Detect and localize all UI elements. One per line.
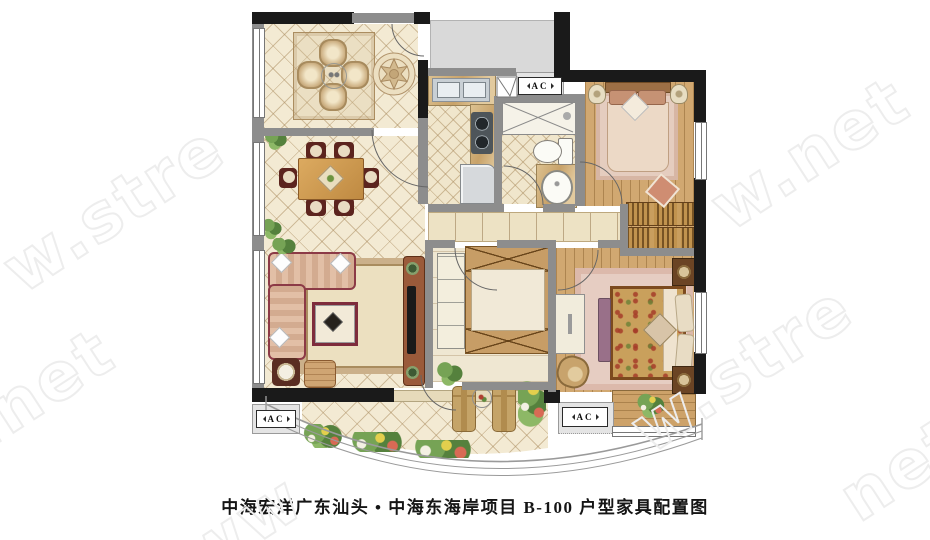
potted-plant	[436, 360, 464, 386]
wall	[620, 248, 694, 256]
balcony-plant	[300, 424, 346, 448]
wall	[694, 352, 706, 394]
window	[695, 122, 707, 180]
wall	[418, 60, 428, 118]
wall	[428, 204, 504, 212]
bed3-foot-storage	[465, 328, 551, 354]
wall	[428, 68, 516, 76]
potted-plant	[262, 216, 282, 240]
balcony-plant	[408, 440, 478, 458]
bed3-mattress	[471, 269, 545, 331]
wall	[462, 382, 548, 390]
window	[695, 292, 707, 354]
floor-plan-image: w.stre w.net .net w.stre www net	[0, 0, 930, 540]
wall	[494, 96, 502, 204]
ac-label-bottom-left: AC	[256, 410, 296, 428]
bedroom3-cabinet	[437, 253, 465, 349]
foyer-center-table	[321, 63, 347, 89]
bay-window-glass	[612, 426, 696, 437]
wall	[252, 12, 354, 24]
balcony-plant	[346, 432, 408, 452]
plan-caption: 中海宏洋广东汕头 • 中海东海岸项目 B-100 户型家具配置图	[0, 493, 930, 518]
kitchen-stove	[471, 112, 493, 154]
wall	[425, 240, 433, 388]
dining-chair	[279, 168, 297, 188]
potted-plant	[270, 238, 298, 254]
wall	[252, 128, 374, 136]
corridor-floor	[428, 212, 622, 242]
wall	[554, 12, 570, 74]
sink-bowl	[463, 82, 486, 98]
wall	[543, 204, 575, 212]
sink-bowl	[437, 82, 460, 98]
window	[253, 142, 265, 236]
dining-chair	[334, 198, 354, 216]
roof-void-area	[430, 20, 558, 74]
tv-shelf-decor	[406, 262, 419, 275]
ac-label-text: AC	[577, 412, 594, 422]
bay-window-flowers	[636, 392, 666, 418]
side-table-with-lamp	[272, 358, 300, 386]
master-pillow	[674, 293, 694, 332]
watermark-text: .net	[0, 313, 128, 465]
toilet-bowl	[533, 140, 562, 163]
wash-basin	[541, 170, 573, 205]
wall	[497, 240, 556, 248]
wall	[554, 70, 706, 82]
wall	[694, 82, 706, 122]
bed-end-bench	[598, 298, 611, 362]
wall	[418, 118, 428, 204]
balcony-round-table	[472, 388, 492, 408]
shower-head	[563, 112, 571, 120]
wall	[414, 12, 430, 24]
nightstand	[670, 84, 688, 104]
sofa-left-section	[268, 284, 306, 360]
dining-chair	[306, 198, 326, 216]
window	[253, 250, 265, 384]
wall	[575, 94, 585, 206]
wall	[352, 13, 414, 23]
tv-shelf-decor	[406, 366, 419, 379]
wall	[252, 386, 264, 402]
master-nightstand	[672, 366, 696, 394]
master-nightstand	[672, 258, 696, 286]
watermark-text: w.stre	[0, 109, 239, 309]
master-desk	[555, 294, 585, 354]
ottoman-pouf	[304, 360, 336, 388]
nightstand	[588, 84, 606, 104]
ac-label-text: AC	[532, 81, 549, 91]
kitchen-sink	[432, 78, 490, 102]
watermark-text: w.net	[697, 61, 924, 245]
wall	[694, 242, 706, 292]
lounge-chair	[492, 386, 516, 432]
wall	[598, 240, 622, 248]
wall	[548, 248, 556, 392]
balcony-plant	[518, 372, 546, 430]
ac-label-bottom-right: AC	[562, 407, 608, 427]
ac-label-top: AC	[518, 77, 562, 95]
wall	[262, 388, 394, 402]
tv-screen	[407, 286, 416, 354]
wall	[502, 94, 575, 102]
wall	[694, 178, 706, 242]
ac-label-text: AC	[268, 414, 285, 424]
window	[253, 28, 265, 118]
refrigerator	[460, 164, 496, 204]
